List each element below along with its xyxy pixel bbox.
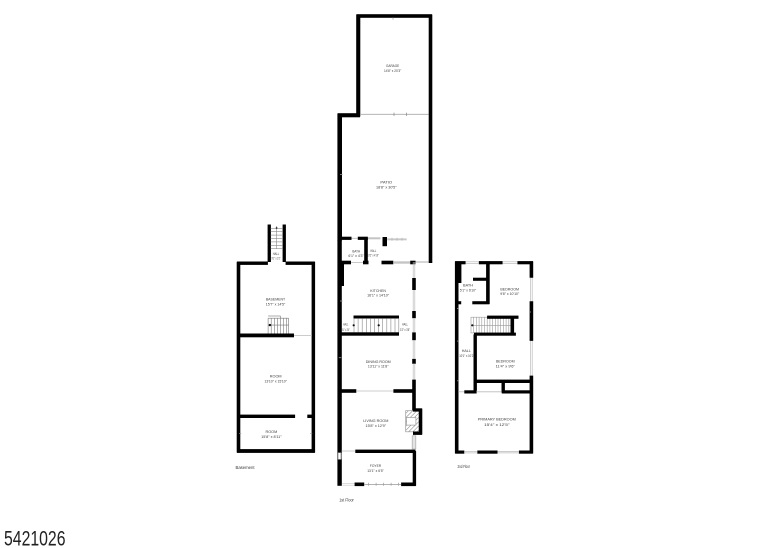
svg-text:2nd Floor: 2nd Floor	[457, 464, 470, 469]
svg-text:18'8" x 30'5": 18'8" x 30'5"	[376, 185, 397, 190]
svg-text:4'1" x 3'0": 4'1" x 3'0"	[342, 327, 350, 332]
svg-text:15'7" x 14'5": 15'7" x 14'5"	[266, 302, 286, 307]
svg-text:15'8" x 8'11": 15'8" x 8'11"	[261, 434, 282, 439]
svg-text:5421026: 5421026	[4, 528, 66, 548]
svg-text:13'11" x 11'8": 13'11" x 11'8"	[368, 363, 389, 368]
svg-text:BASEMENT: BASEMENT	[266, 296, 286, 301]
svg-text:5'1" x 6'10": 5'1" x 6'10"	[460, 288, 477, 293]
svg-text:6'1" x 4'3": 6'1" x 4'3"	[348, 253, 364, 258]
svg-text:ROOM: ROOM	[270, 373, 282, 378]
svg-text:9'1" x 3'1": 9'1" x 3'1"	[271, 256, 280, 261]
svg-text:9'8" x 10'10": 9'8" x 10'10"	[500, 291, 520, 296]
svg-text:10'1" x 10'2": 10'1" x 10'2"	[459, 353, 474, 358]
svg-text:15'4" x 12'5": 15'4" x 12'5"	[484, 422, 510, 427]
svg-text:13'1" x 6'5": 13'1" x 6'5"	[367, 468, 384, 473]
svg-text:11'4" x 9'6": 11'4" x 9'6"	[496, 364, 516, 369]
svg-text:16'1" x 14'10": 16'1" x 14'10"	[367, 293, 389, 298]
svg-text:15'8" x 12'9": 15'8" x 12'9"	[366, 423, 387, 428]
svg-text:10'2" x 4'10": 10'2" x 4'10"	[367, 253, 379, 258]
svg-text:PRIMARY BEDROOM: PRIMARY BEDROOM	[478, 417, 516, 422]
svg-text:14'8" x 20'3": 14'8" x 20'3"	[384, 68, 402, 73]
svg-text:13'10" x 15'10": 13'10" x 15'10"	[265, 379, 288, 384]
svg-text:3'2" x 3'5": 3'2" x 3'5"	[400, 327, 410, 332]
svg-text:1st Floor: 1st Floor	[339, 497, 354, 502]
svg-text:Basement: Basement	[236, 465, 256, 470]
